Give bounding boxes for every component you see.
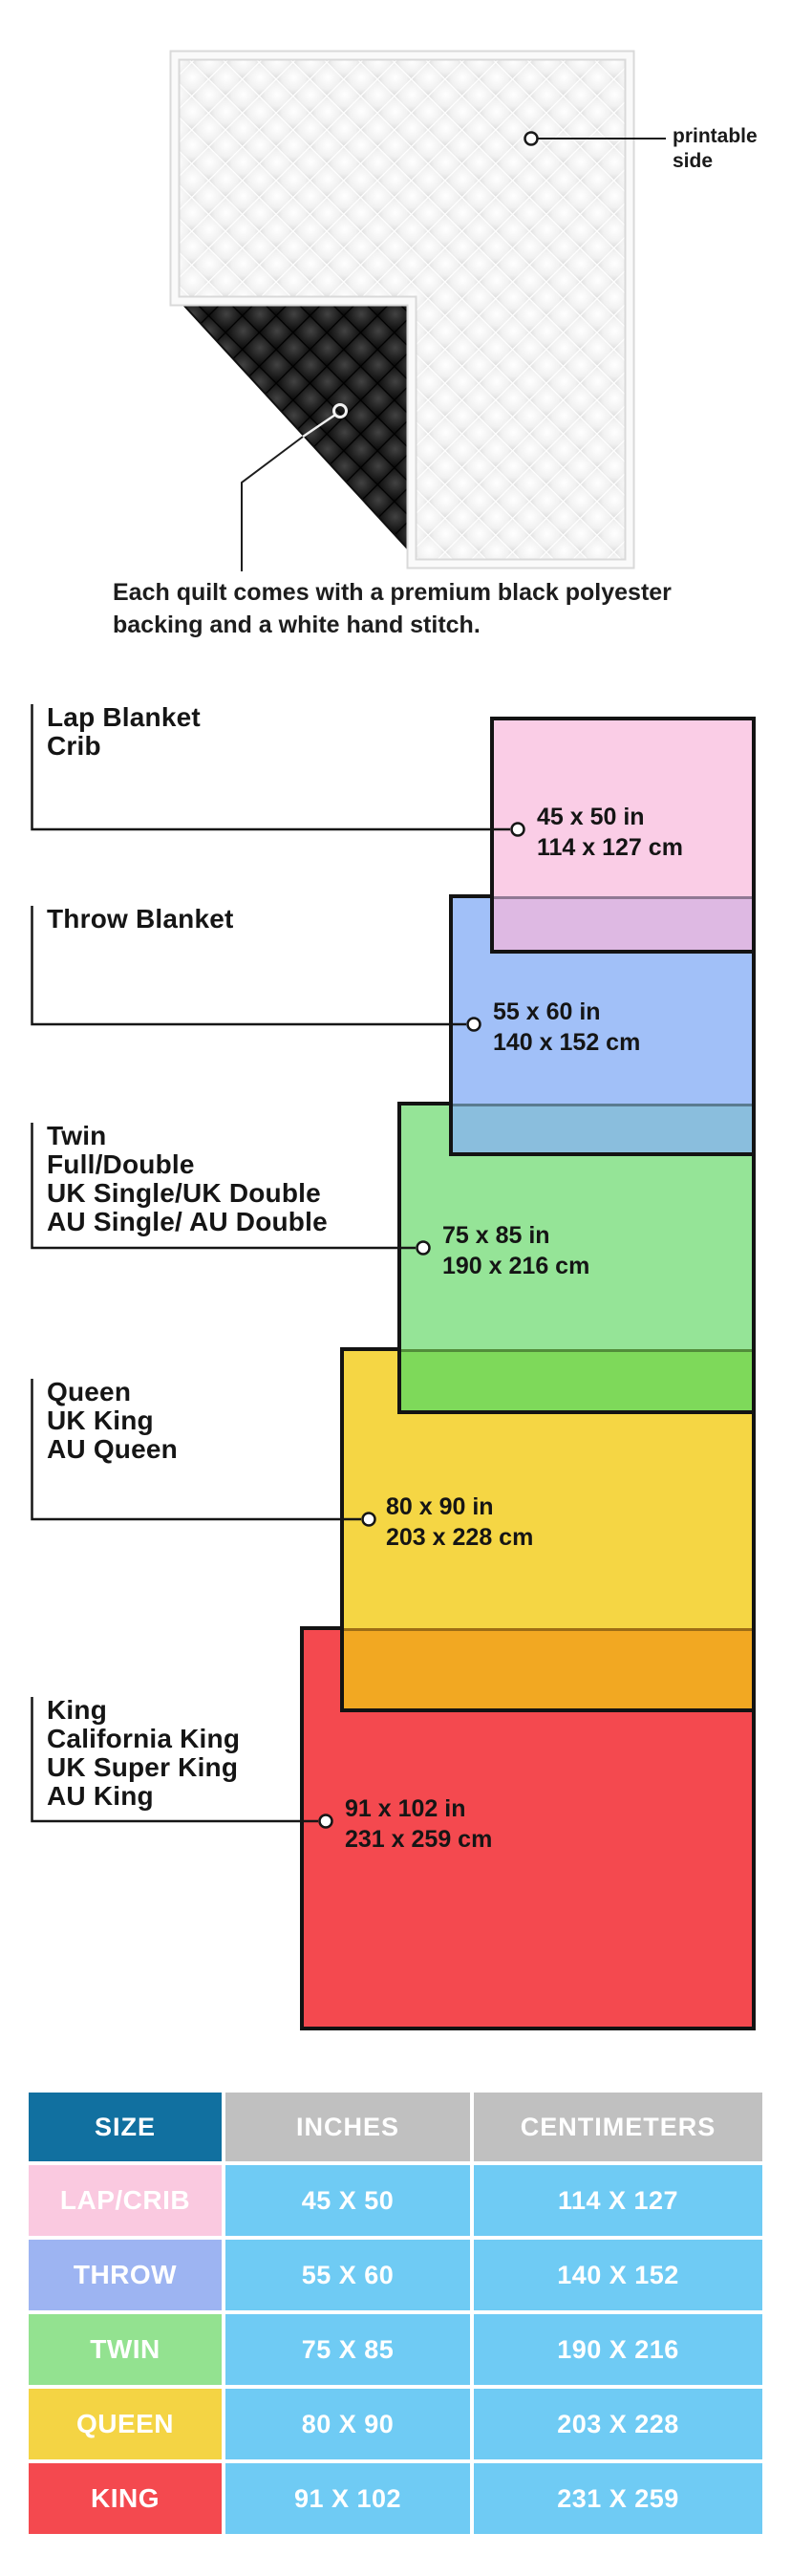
label-line: AU Single/ AU Double <box>47 1208 328 1236</box>
table-row-queen-inches: 80 X 90 <box>225 2389 470 2459</box>
size-chart-infographic: printable side Each quilt comes with a p… <box>0 0 791 2576</box>
label-line: Queen <box>47 1378 178 1406</box>
dims-cm: 140 x 152 cm <box>493 1027 640 1058</box>
table-row-lap-crib-cm: 114 X 127 <box>474 2165 762 2236</box>
table-row-queen-cm: 203 X 228 <box>474 2389 762 2459</box>
label-queen: Queen UK King AU Queen <box>47 1378 178 1464</box>
overlap-queen-king <box>342 1628 754 1710</box>
printable-side-label: printable side <box>673 124 780 174</box>
dims-lap-crib: 45 x 50 in 114 x 127 cm <box>537 802 683 863</box>
dot-lap <box>512 824 524 836</box>
dims-cm: 114 x 127 cm <box>537 832 683 863</box>
table-header-centimeters: CENTIMETERS <box>474 2093 762 2161</box>
label-line: Full/Double <box>47 1150 328 1179</box>
label-line: Crib <box>47 732 201 761</box>
label-line: AU Queen <box>47 1435 178 1464</box>
table-row-king-cm: 231 X 259 <box>474 2463 762 2534</box>
table-row-twin-cm: 190 X 216 <box>474 2314 762 2385</box>
dims-twin: 75 x 85 in 190 x 216 cm <box>442 1220 589 1281</box>
table-header-size: SIZE <box>29 2093 222 2161</box>
label-king: King California King UK Super King AU Ki… <box>47 1696 240 1811</box>
dot-king <box>320 1815 332 1828</box>
label-throw: Throw Blanket <box>47 905 234 934</box>
label-line: Lap Blanket <box>47 703 201 732</box>
dot-throw <box>468 1019 481 1031</box>
dot-queen <box>363 1513 375 1526</box>
quilt-caption: Each quilt comes with a premium black po… <box>113 576 697 641</box>
label-twin: Twin Full/Double UK Single/UK Double AU … <box>47 1122 328 1236</box>
label-line: King <box>47 1696 240 1725</box>
table-row-lap-crib-size: LAP/CRIB <box>29 2165 222 2236</box>
label-line: California King <box>47 1725 240 1753</box>
table-row-throw-inches: 55 X 60 <box>225 2240 470 2310</box>
dims-cm: 231 x 259 cm <box>345 1824 492 1855</box>
table-row-throw-cm: 140 X 152 <box>474 2240 762 2310</box>
dims-inches: 45 x 50 in <box>537 802 683 832</box>
size-table: SIZE INCHES CENTIMETERS LAP/CRIB 45 X 50… <box>29 2093 762 2534</box>
dims-throw: 55 x 60 in 140 x 152 cm <box>493 997 640 1058</box>
dims-inches: 55 x 60 in <box>493 997 640 1027</box>
table-row-lap-crib-inches: 45 X 50 <box>225 2165 470 2236</box>
label-line: UK Super King <box>47 1753 240 1782</box>
dims-inches: 91 x 102 in <box>345 1793 492 1824</box>
table-row-king-inches: 91 X 102 <box>225 2463 470 2534</box>
dot-twin <box>417 1242 430 1255</box>
label-lap-crib: Lap Blanket Crib <box>47 703 201 761</box>
table-row-queen-size: QUEEN <box>29 2389 222 2459</box>
backing-callout-line-dark <box>242 437 303 571</box>
overlap-twin-queen <box>399 1349 754 1412</box>
overlap-lap-throw <box>492 896 754 952</box>
label-line: UK Single/UK Double <box>47 1179 328 1208</box>
dims-inches: 80 x 90 in <box>386 1492 533 1522</box>
label-line: Throw Blanket <box>47 905 234 934</box>
dims-king: 91 x 102 in 231 x 259 cm <box>345 1793 492 1855</box>
dims-cm: 190 x 216 cm <box>442 1251 589 1281</box>
overlap-throw-twin <box>451 1104 754 1154</box>
table-row-twin-size: TWIN <box>29 2314 222 2385</box>
table-row-king-size: KING <box>29 2463 222 2534</box>
label-line: AU King <box>47 1782 240 1811</box>
table-row-throw-size: THROW <box>29 2240 222 2310</box>
dims-queen: 80 x 90 in 203 x 228 cm <box>386 1492 533 1553</box>
table-header-inches: INCHES <box>225 2093 470 2161</box>
quilt-black-backing-triangle <box>183 301 412 553</box>
dims-cm: 203 x 228 cm <box>386 1522 533 1553</box>
label-line: Twin <box>47 1122 328 1150</box>
table-row-twin-inches: 75 X 85 <box>225 2314 470 2385</box>
dims-inches: 75 x 85 in <box>442 1220 589 1251</box>
label-line: UK King <box>47 1406 178 1435</box>
printable-side-callout-dot <box>525 133 538 145</box>
